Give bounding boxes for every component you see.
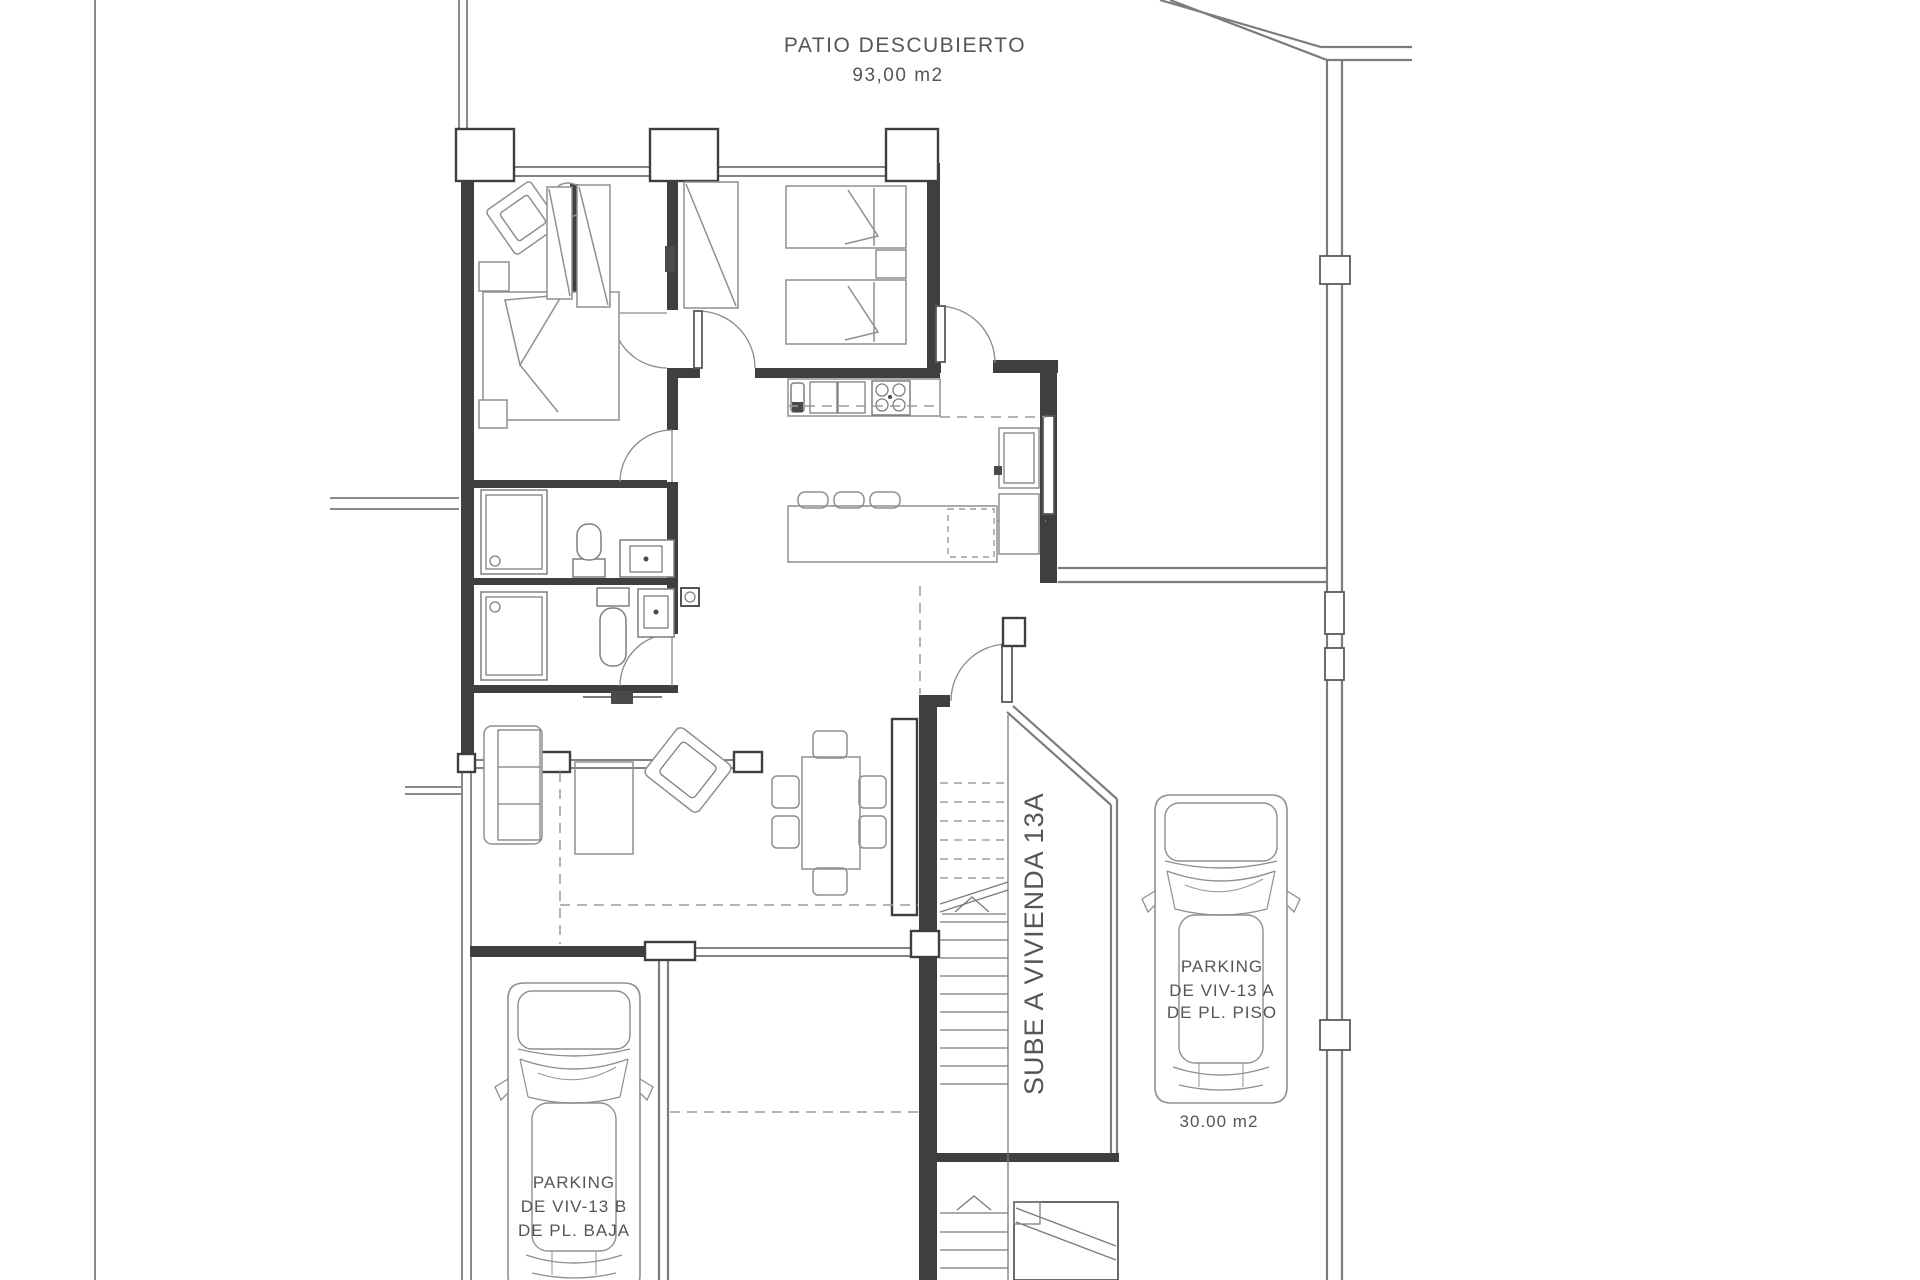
parking-b-label-line3: DE PL. BAJA [518,1221,630,1240]
entry-chamfer-wall-inner [1007,712,1111,805]
dining-chair-left-1 [772,776,799,808]
kitchen [788,379,1046,562]
wardrobe-handle-detail [665,246,675,272]
wall-living-north [474,685,678,693]
bathroom1-toilet-tank [573,559,605,577]
bedroom-1 [479,180,619,428]
parking-b-label-line1: PARKING [533,1173,615,1192]
living-armchair [643,725,734,814]
patio-area-label: 93,00 m2 [852,65,943,86]
bathroom2-toilet-bowl [600,608,626,666]
floor-plan-drawing: PARKING DE VIV-13 A DE PL. PISO 30.00 m2… [0,0,1920,1280]
dining-chair-left-2 [772,816,799,848]
bedroom2-door-leaf [694,311,702,368]
entry-door-arc [951,644,1008,701]
terrace-door-arc [940,306,995,363]
wall-hall-east-upper [667,180,678,310]
parking-a-label-line2: DE VIV-13 A [1169,981,1275,1000]
wall-stair-west [919,695,937,1280]
entry-chamfer-wall-outer [1013,706,1117,799]
entry-door-pillar [1003,618,1025,646]
wall-entry [919,695,950,707]
stair-wall-pillar [911,931,939,957]
kitchen-tall-unit [999,494,1039,554]
apartment-east-window [1043,416,1054,514]
living-south-pillar-west [458,754,475,772]
parking-b: PARKING DE VIV-13 B DE PL. BAJA [495,983,653,1280]
dining-east-pier [892,719,917,915]
wall-hall-east-mid [667,368,678,430]
north-pillar-east [886,129,938,181]
kitchen-island [788,506,997,562]
terrace-door-leaf [936,306,945,362]
wall-bedroom2-south-right [755,368,940,378]
kitchen-sink-drainer [792,402,803,412]
bathroom1-shower [481,490,547,574]
right-wall-pillar-bottom [1320,1020,1350,1050]
bedroom-2 [684,182,906,344]
bathroom2-sink-tap [654,610,659,615]
living-room [484,691,733,854]
kitchen-counter [788,379,940,416]
dining-chair-bottom [813,868,847,895]
parking-a-label-line1: PARKING [1181,957,1263,976]
bedroom2-door-arc [698,311,755,368]
tv-screen [611,691,633,704]
right-wall-window-upper [1325,592,1344,634]
wall-bedroom2-south-left [678,368,700,378]
corner-washbasin [681,588,699,606]
right-wall-pillar-top [1320,256,1350,284]
sofa [484,726,542,844]
parking-b-label-line2: DE VIV-13 B [521,1197,627,1216]
parking-a: PARKING DE VIV-13 A DE PL. PISO 30.00 m2 [1142,795,1300,1131]
bathroom2-toilet-tank [597,588,629,606]
bedroom1-door-arc [612,313,667,368]
wall-bathrooms-divider [474,578,667,585]
dining-area [772,731,886,895]
parking-a-label-line3: DE PL. PISO [1167,1003,1277,1022]
bathroom2-door-arc [620,634,672,686]
north-pillar-west [456,129,514,181]
living-south-pillar-east [734,752,762,772]
wall-terrace-south [470,946,647,957]
stair-landing-wall [919,1153,1119,1162]
stove-knob [888,395,892,399]
north-pillar-mid [650,129,718,181]
entry-door-leaf [1002,645,1012,702]
parking-a-area-label: 30.00 m2 [1180,1112,1259,1131]
coffee-table [575,762,633,854]
wall-west [461,131,474,772]
bedroom2-bed-1 [786,186,906,248]
right-wall-window-lower [1325,648,1344,680]
kitchen-fridge [999,428,1039,488]
dining-chair-right-1 [859,776,886,808]
site-top-right-wall-outer [1160,0,1412,47]
bathroom-1 [481,490,674,577]
bathroom1-toilet-bowl [577,524,601,560]
stair-direction-arrow-up [955,897,989,912]
dining-table [802,757,860,869]
dining-chair-right-2 [859,816,886,848]
wall-bathroom1-north [474,480,667,488]
bathroom1-door-arc [620,430,672,482]
bathroom1-sink-tap [644,557,649,562]
stair-direction-arrow-up-2 [957,1196,991,1210]
bathroom-2 [481,588,699,680]
kitchen-fridge-handle [994,466,1002,475]
dining-chair-top [813,731,847,758]
patio-title-label: PATIO DESCUBIERTO [784,34,1026,57]
bedroom2-bed-2 [786,280,906,344]
stairs-note-label: SUBE A VIVIENDA 13A [1019,792,1049,1095]
site-top-right-wall-inner [1170,0,1412,60]
dining-south-pillar-west [645,942,695,960]
bedroom2-nightstand [876,250,906,278]
bedroom1-bench [479,400,507,428]
car-a [1142,795,1300,1103]
bedroom1-nightstand [479,262,509,291]
